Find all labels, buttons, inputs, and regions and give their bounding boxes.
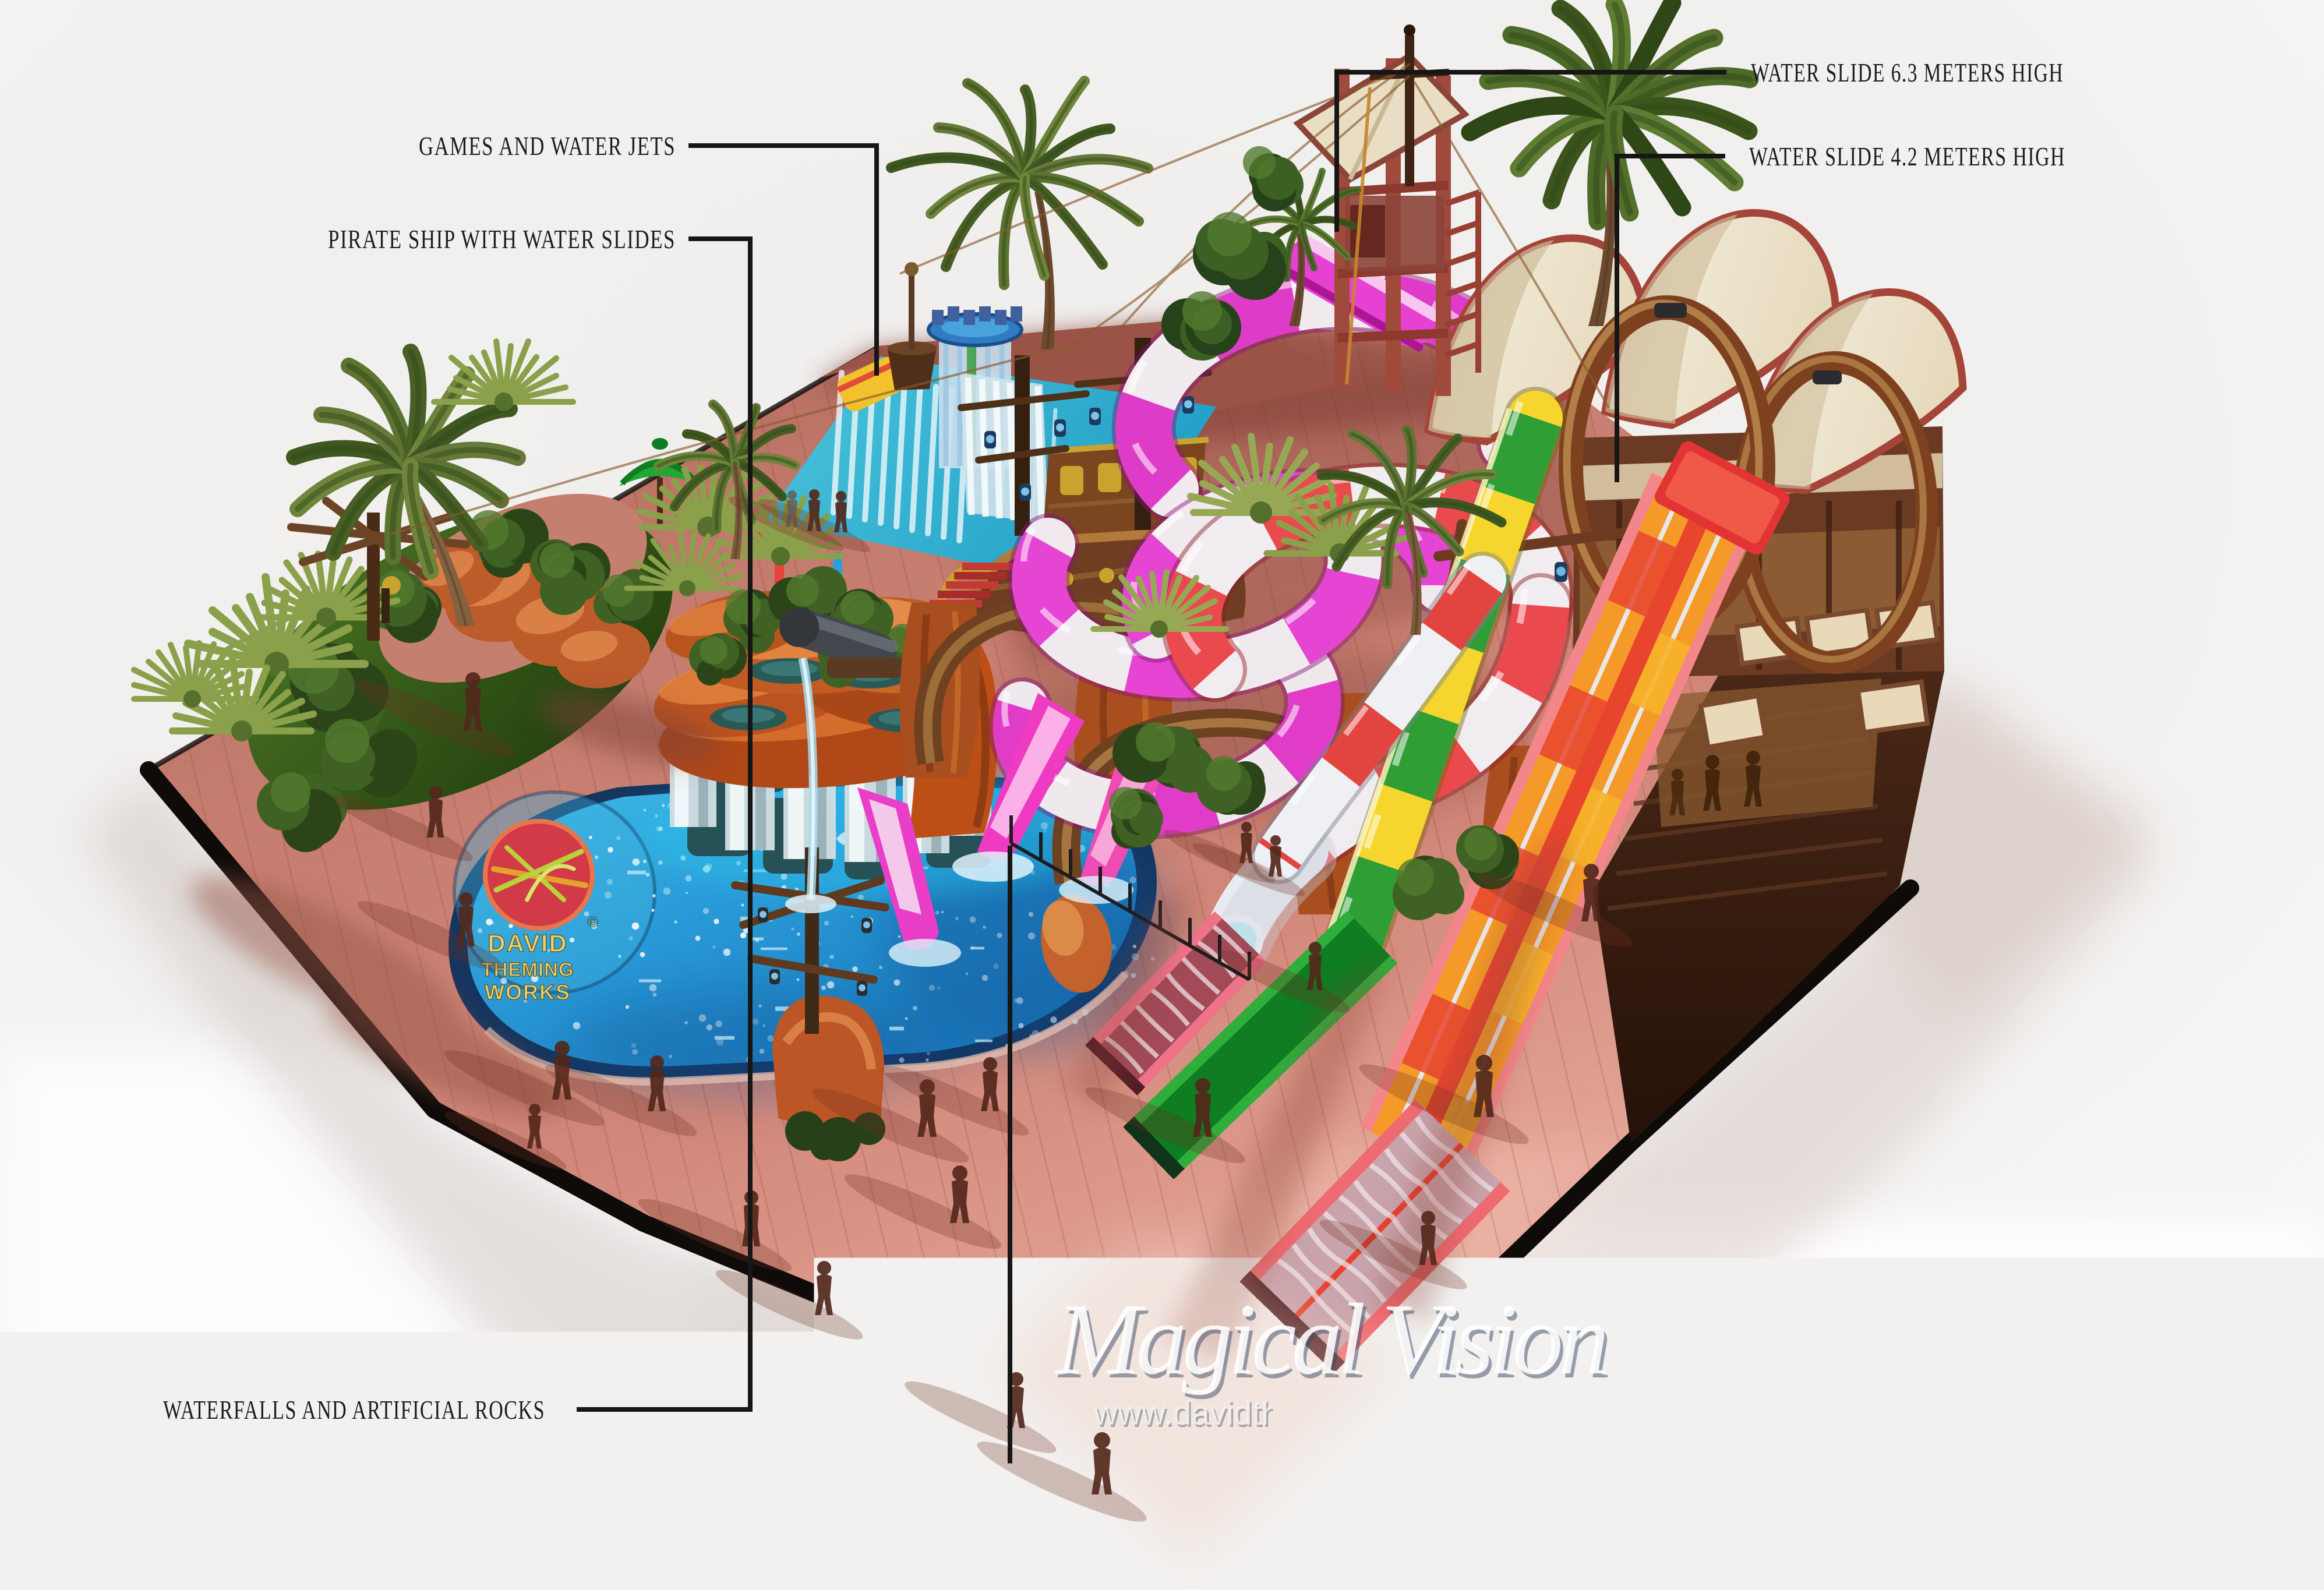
svg-text:www.davidthemingworks.com: www.davidthemingworks.com — [1093, 1394, 1528, 1432]
svg-text:DAVID: DAVID — [488, 930, 568, 957]
svg-text:Magical Vision: Magical Vision — [1054, 1282, 1609, 1395]
svg-text:WORKS: WORKS — [485, 980, 571, 1004]
svg-text:WATERFALLS AND ARTIFICIAL ROCK: WATERFALLS AND ARTIFICIAL ROCKS — [163, 1395, 545, 1425]
svg-text:PIRATE SHIP WITH WATER SLIDES: PIRATE SHIP WITH WATER SLIDES — [328, 224, 676, 254]
svg-text:WATER SLIDE 4.2 METERS HIGH: WATER SLIDE 4.2 METERS HIGH — [1749, 142, 2065, 171]
svg-text:GAMES AND WATER JETS: GAMES AND WATER JETS — [419, 131, 676, 161]
svg-text:RECEPTION SWIMMING POOL: RECEPTION SWIMMING POOL — [202, 1532, 542, 1562]
svg-text:WATER SLIDE 6.3 METERS HIGH: WATER SLIDE 6.3 METERS HIGH — [1751, 58, 2064, 87]
svg-text:©: © — [587, 913, 598, 931]
